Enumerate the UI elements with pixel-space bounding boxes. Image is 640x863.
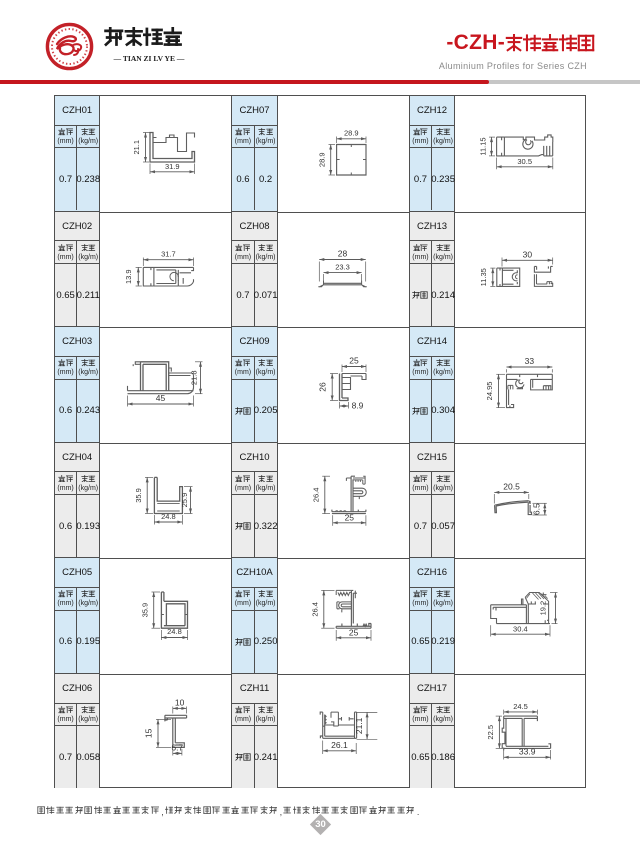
- svg-text:24.8: 24.8: [161, 512, 176, 521]
- svg-text:25: 25: [344, 512, 354, 522]
- svg-text:25: 25: [349, 356, 359, 366]
- svg-text:45: 45: [156, 393, 166, 403]
- svg-text:33.9: 33.9: [519, 746, 536, 756]
- svg-text:6.7: 6.7: [172, 742, 184, 752]
- svg-text:24.8: 24.8: [167, 627, 182, 636]
- svg-text:6.5: 6.5: [532, 503, 542, 515]
- svg-text:19.2: 19.2: [538, 601, 547, 616]
- svg-text:8.9: 8.9: [351, 401, 363, 411]
- svg-text:10: 10: [175, 697, 185, 707]
- svg-text:24.5: 24.5: [513, 702, 528, 711]
- svg-text:26.1: 26.1: [331, 740, 348, 750]
- svg-text:35.9: 35.9: [141, 603, 150, 618]
- svg-text:31.9: 31.9: [165, 162, 180, 171]
- svg-text:25.9: 25.9: [180, 492, 189, 507]
- svg-text:21.1: 21.1: [354, 717, 364, 734]
- svg-text:31.7: 31.7: [161, 249, 176, 258]
- svg-text:11.15: 11.15: [479, 137, 488, 155]
- svg-text:28: 28: [337, 248, 347, 258]
- svg-text:11.35: 11.35: [479, 268, 488, 286]
- svg-text:26.4: 26.4: [311, 487, 320, 502]
- svg-text:20.5: 20.5: [503, 481, 520, 491]
- svg-text:30.4: 30.4: [513, 625, 528, 634]
- svg-text:30: 30: [523, 249, 533, 259]
- svg-text:22.5: 22.5: [486, 725, 495, 740]
- svg-text:24.95: 24.95: [485, 382, 494, 401]
- svg-text:35.9: 35.9: [134, 488, 143, 503]
- svg-text:26: 26: [317, 382, 327, 392]
- svg-text:28.9: 28.9: [344, 129, 359, 138]
- svg-text:28.9: 28.9: [317, 152, 326, 167]
- svg-text:21.1: 21.1: [132, 140, 141, 155]
- svg-text:30.5: 30.5: [518, 157, 533, 166]
- svg-text:33: 33: [525, 356, 535, 366]
- svg-text:15: 15: [144, 728, 154, 738]
- svg-text:26.4: 26.4: [310, 602, 319, 617]
- svg-text:13.9: 13.9: [124, 269, 133, 284]
- svg-text:25: 25: [349, 627, 359, 637]
- svg-text:21.8: 21.8: [190, 371, 199, 386]
- svg-text:23.3: 23.3: [335, 262, 350, 271]
